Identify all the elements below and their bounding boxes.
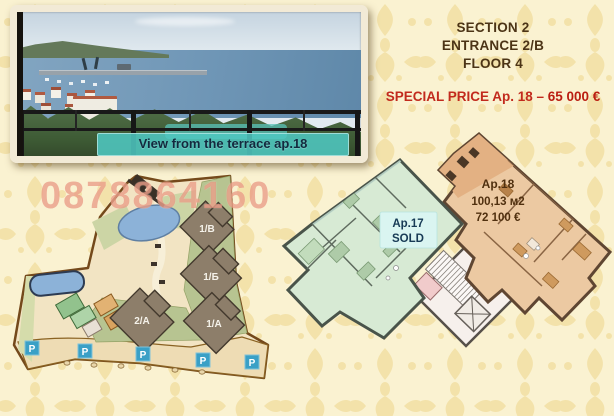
- floor-plan: Ap.18 100,13 м2 72 100 €: [276, 128, 614, 394]
- site-plan: 1/B 1/Б 1/A 2/A P P: [6, 170, 276, 416]
- photo-left-edge: [17, 12, 23, 156]
- ap18-price: 72 100 €: [476, 212, 521, 224]
- building-1b-label: 1/B: [199, 224, 215, 235]
- special-price-value: 65 000 €: [548, 89, 601, 104]
- harbor-pier: [39, 70, 207, 75]
- parking-p-icon: P: [82, 347, 89, 358]
- section-line: SECTION 2: [374, 19, 612, 37]
- entrance-line: ENTRANCE 2/B: [374, 37, 612, 55]
- balcony-subpost: [189, 110, 191, 131]
- marina-boats: [45, 78, 49, 81]
- header-block: SECTION 2 ENTRANCE 2/B FLOOR 4: [374, 19, 612, 73]
- parking-p-icon: P: [249, 358, 256, 369]
- parking-p-icon: P: [140, 350, 147, 361]
- building-2a-label: 2/A: [134, 316, 150, 327]
- special-price-line: SPECIAL PRICE Ap. 18 – 65 000 €: [372, 89, 614, 104]
- building-1a-label: 1/A: [206, 319, 222, 330]
- ap17-label-box: Ap.17 SOLD: [380, 212, 437, 248]
- building-1bg-label: 1/Б: [203, 272, 219, 283]
- parking-p-icon: P: [29, 344, 36, 355]
- ap18-area: 100,13 м2: [471, 196, 524, 208]
- parking-p-icon: P: [200, 356, 207, 367]
- special-price-label: SPECIAL PRICE Ap. 18 –: [386, 89, 544, 104]
- ship: [117, 64, 131, 70]
- ap17-status: SOLD: [392, 233, 424, 245]
- ap18-name: Ap.18: [482, 177, 515, 191]
- cloud: [135, 17, 235, 26]
- ap17-name: Ap.17: [392, 218, 423, 230]
- balcony-subpost: [75, 110, 77, 131]
- floor-line: FLOOR 4: [374, 55, 612, 73]
- flyer-page: View from the terrace ap.18 SECTION 2 EN…: [0, 0, 614, 416]
